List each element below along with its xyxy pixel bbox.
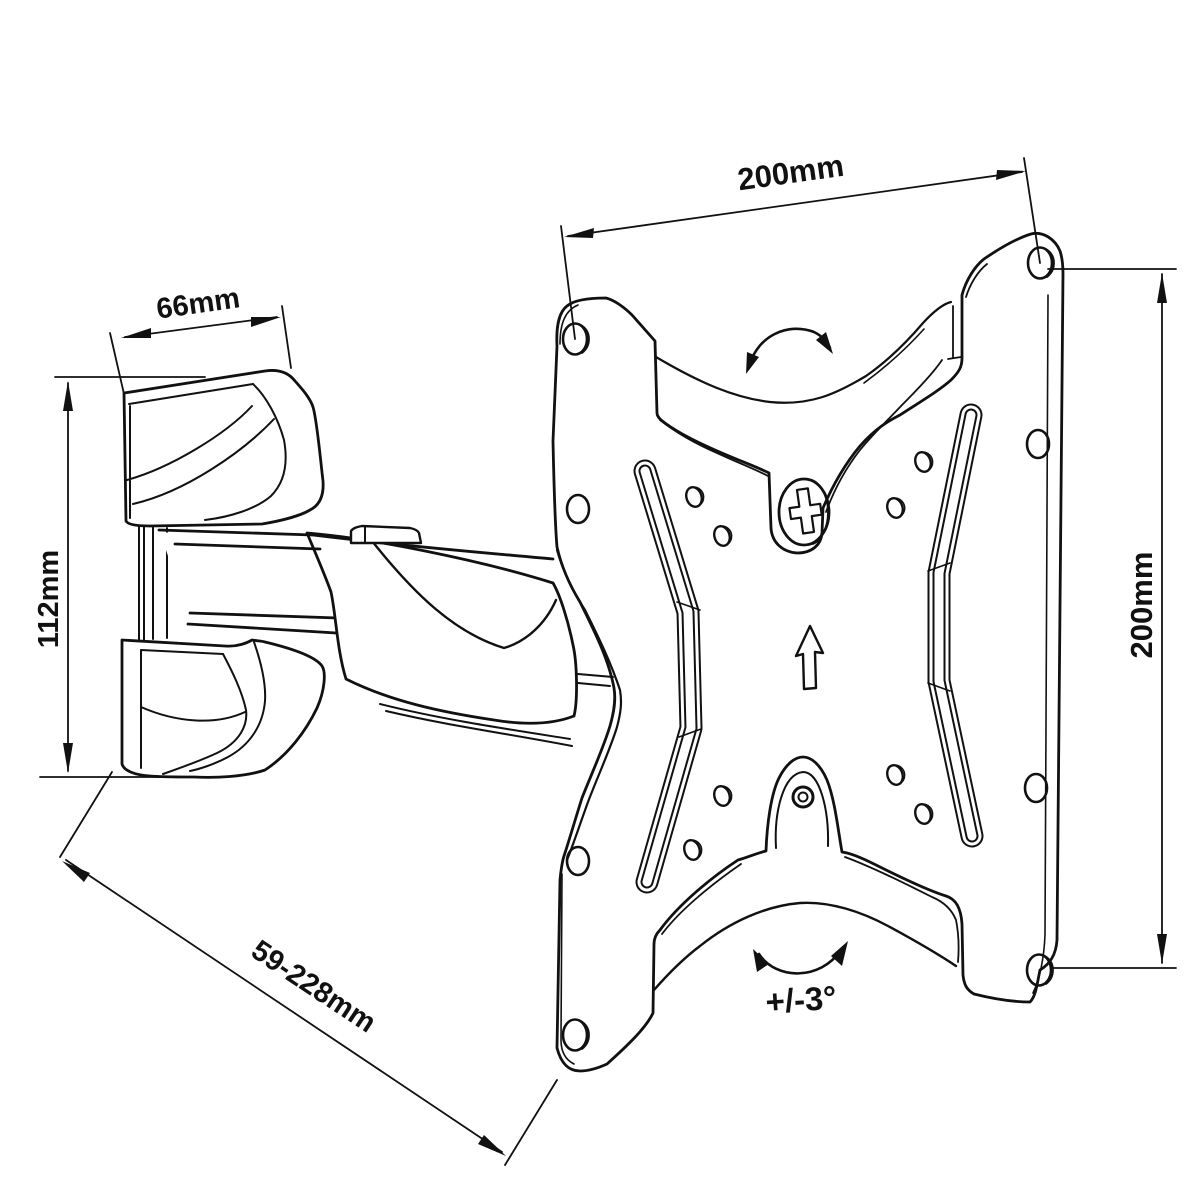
svg-text:66mm: 66mm xyxy=(154,282,241,325)
svg-text:+/-3°: +/-3° xyxy=(764,979,837,1021)
svg-text:112mm: 112mm xyxy=(33,550,65,648)
svg-text:59-228mm: 59-228mm xyxy=(245,934,381,1039)
svg-text:200mm: 200mm xyxy=(735,148,846,198)
svg-text:200mm: 200mm xyxy=(1124,552,1159,659)
